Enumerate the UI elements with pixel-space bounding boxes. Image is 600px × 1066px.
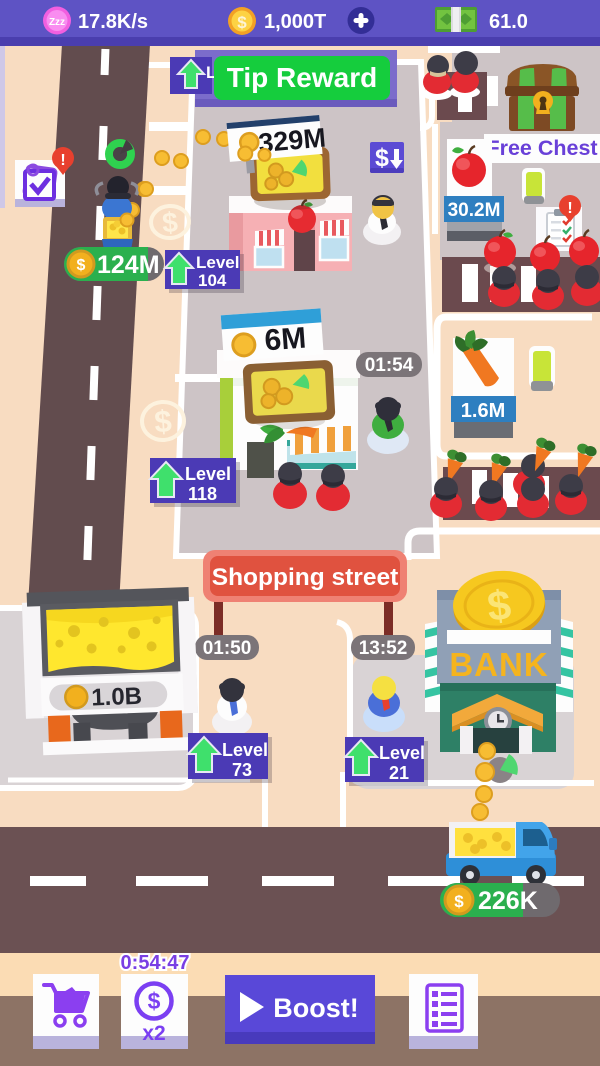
svg-text:01:50: 01:50 [203, 638, 252, 659]
svg-text:$: $ [485, 581, 513, 630]
svg-text:01:54: 01:54 [365, 355, 414, 376]
svg-text:!: ! [60, 152, 65, 169]
svg-text:$: $ [237, 13, 247, 32]
svg-text:Level: Level [185, 464, 231, 484]
svg-text:1.6M: 1.6M [461, 400, 505, 422]
svg-text:Free Chest: Free Chest [486, 136, 597, 160]
svg-text:x2: x2 [142, 1022, 165, 1045]
svg-text:Boost!: Boost! [273, 993, 358, 1023]
svg-text:0:54:47: 0:54:47 [121, 952, 190, 974]
svg-text:61.0: 61.0 [489, 11, 528, 33]
svg-text:13:52: 13:52 [359, 638, 408, 659]
svg-text:118: 118 [188, 484, 217, 504]
svg-text:$: $ [161, 206, 179, 238]
svg-text:$: $ [153, 403, 173, 439]
svg-text:104: 104 [198, 271, 227, 290]
svg-text:$: $ [148, 988, 161, 1014]
svg-text:226K: 226K [478, 887, 538, 915]
svg-text:Level: Level [196, 253, 239, 272]
svg-text:73: 73 [232, 760, 252, 780]
svg-text:$: $ [454, 892, 464, 911]
svg-text:6M: 6M [263, 322, 307, 358]
svg-text:Level: Level [222, 740, 268, 760]
svg-text:21: 21 [389, 763, 409, 783]
svg-text:124M: 124M [97, 251, 160, 279]
svg-text:1,000T: 1,000T [264, 11, 326, 33]
svg-text:Shopping street: Shopping street [212, 564, 398, 591]
svg-text:17.8K/s: 17.8K/s [78, 11, 148, 33]
svg-text:BANK: BANK [449, 646, 548, 683]
svg-text:30.2M: 30.2M [448, 200, 501, 221]
svg-text:Level: Level [379, 743, 425, 763]
svg-text:Tip Reward: Tip Reward [227, 62, 377, 93]
svg-text:!: ! [567, 200, 572, 217]
svg-text:$: $ [375, 144, 389, 172]
svg-text:$: $ [77, 257, 86, 274]
svg-text:1.0B: 1.0B [91, 683, 143, 712]
svg-text:Zzz: Zzz [49, 17, 65, 28]
